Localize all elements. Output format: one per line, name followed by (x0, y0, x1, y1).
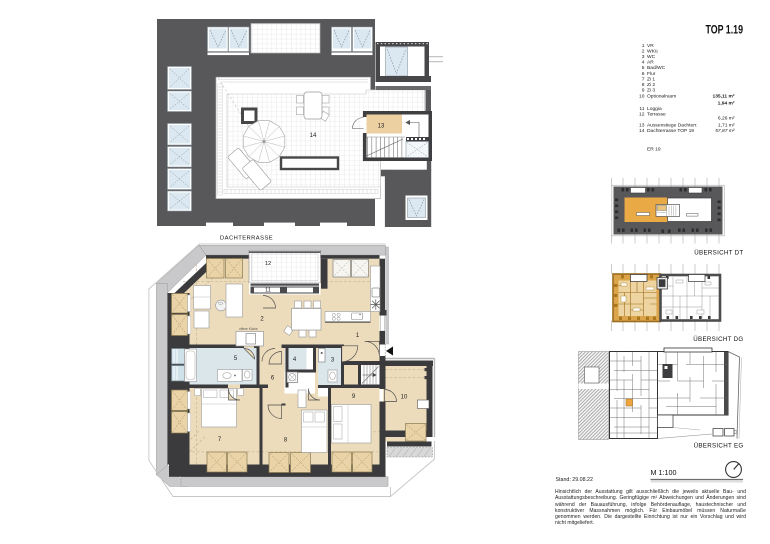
svg-text:5: 5 (642, 65, 645, 71)
svg-text:57,87 m²: 57,87 m² (715, 128, 735, 134)
svg-text:M 1:100: M 1:100 (651, 468, 677, 477)
svg-text:12: 12 (265, 261, 271, 267)
svg-text:14: 14 (639, 128, 645, 134)
svg-text:135,11 m²: 135,11 m² (712, 93, 734, 99)
svg-text:ÜBERSICHT DG: ÜBERSICHT DG (693, 336, 743, 343)
svg-text:7: 7 (642, 76, 645, 82)
svg-text:ÜBERSICHT EG: ÜBERSICHT EG (694, 443, 744, 450)
svg-text:9: 9 (642, 88, 645, 94)
svg-text:10: 10 (639, 93, 645, 99)
svg-text:12: 12 (639, 111, 645, 117)
svg-text:13: 13 (639, 123, 645, 129)
svg-text:Zi 1: Zi 1 (647, 76, 655, 82)
svg-text:1: 1 (642, 43, 645, 49)
svg-text:Zi 3: Zi 3 (647, 88, 655, 94)
svg-text:Stand: 29.08.22: Stand: 29.08.22 (556, 477, 593, 483)
svg-text:1,94 m²: 1,94 m² (718, 101, 735, 107)
svg-text:TOP 1.19: TOP 1.19 (706, 23, 744, 37)
svg-text:1,71 m²: 1,71 m² (718, 123, 735, 129)
svg-text:offene Küche: offene Küche (239, 327, 258, 331)
svg-text:Bad/WC: Bad/WC (647, 65, 666, 71)
svg-text:Optionalraum: Optionalraum (647, 93, 676, 99)
svg-text:10: 10 (401, 395, 408, 401)
svg-text:ER 19: ER 19 (647, 147, 661, 153)
svg-text:Flur: Flur (647, 71, 656, 77)
svg-text:AR: AR (647, 60, 654, 66)
svg-text:14: 14 (310, 133, 317, 139)
svg-text:11: 11 (265, 288, 271, 294)
svg-text:Zi 2: Zi 2 (647, 82, 655, 88)
svg-text:DACHTERRASSE: DACHTERRASSE (220, 236, 273, 242)
svg-text:ÜBERSICHT DT: ÜBERSICHT DT (694, 249, 743, 256)
svg-text:WC: WC (647, 54, 656, 60)
svg-text:6,26 m²: 6,26 m² (718, 116, 735, 122)
svg-text:6: 6 (642, 71, 645, 77)
svg-text:8: 8 (642, 82, 645, 88)
svg-text:4: 4 (642, 60, 645, 66)
svg-text:13: 13 (378, 124, 385, 130)
svg-text:VR: VR (647, 43, 654, 49)
svg-text:11: 11 (639, 106, 644, 112)
svg-text:Aussenstiege Dachterr.: Aussenstiege Dachterr. (647, 123, 698, 129)
svg-text:WKü: WKü (647, 49, 658, 55)
svg-text:Loggia: Loggia (647, 106, 662, 112)
svg-text:2: 2 (642, 49, 645, 55)
svg-text:Terrasse: Terrasse (647, 111, 666, 117)
svg-text:3: 3 (642, 54, 645, 60)
svg-text:Dachterrasse TOP 19: Dachterrasse TOP 19 (647, 128, 694, 134)
